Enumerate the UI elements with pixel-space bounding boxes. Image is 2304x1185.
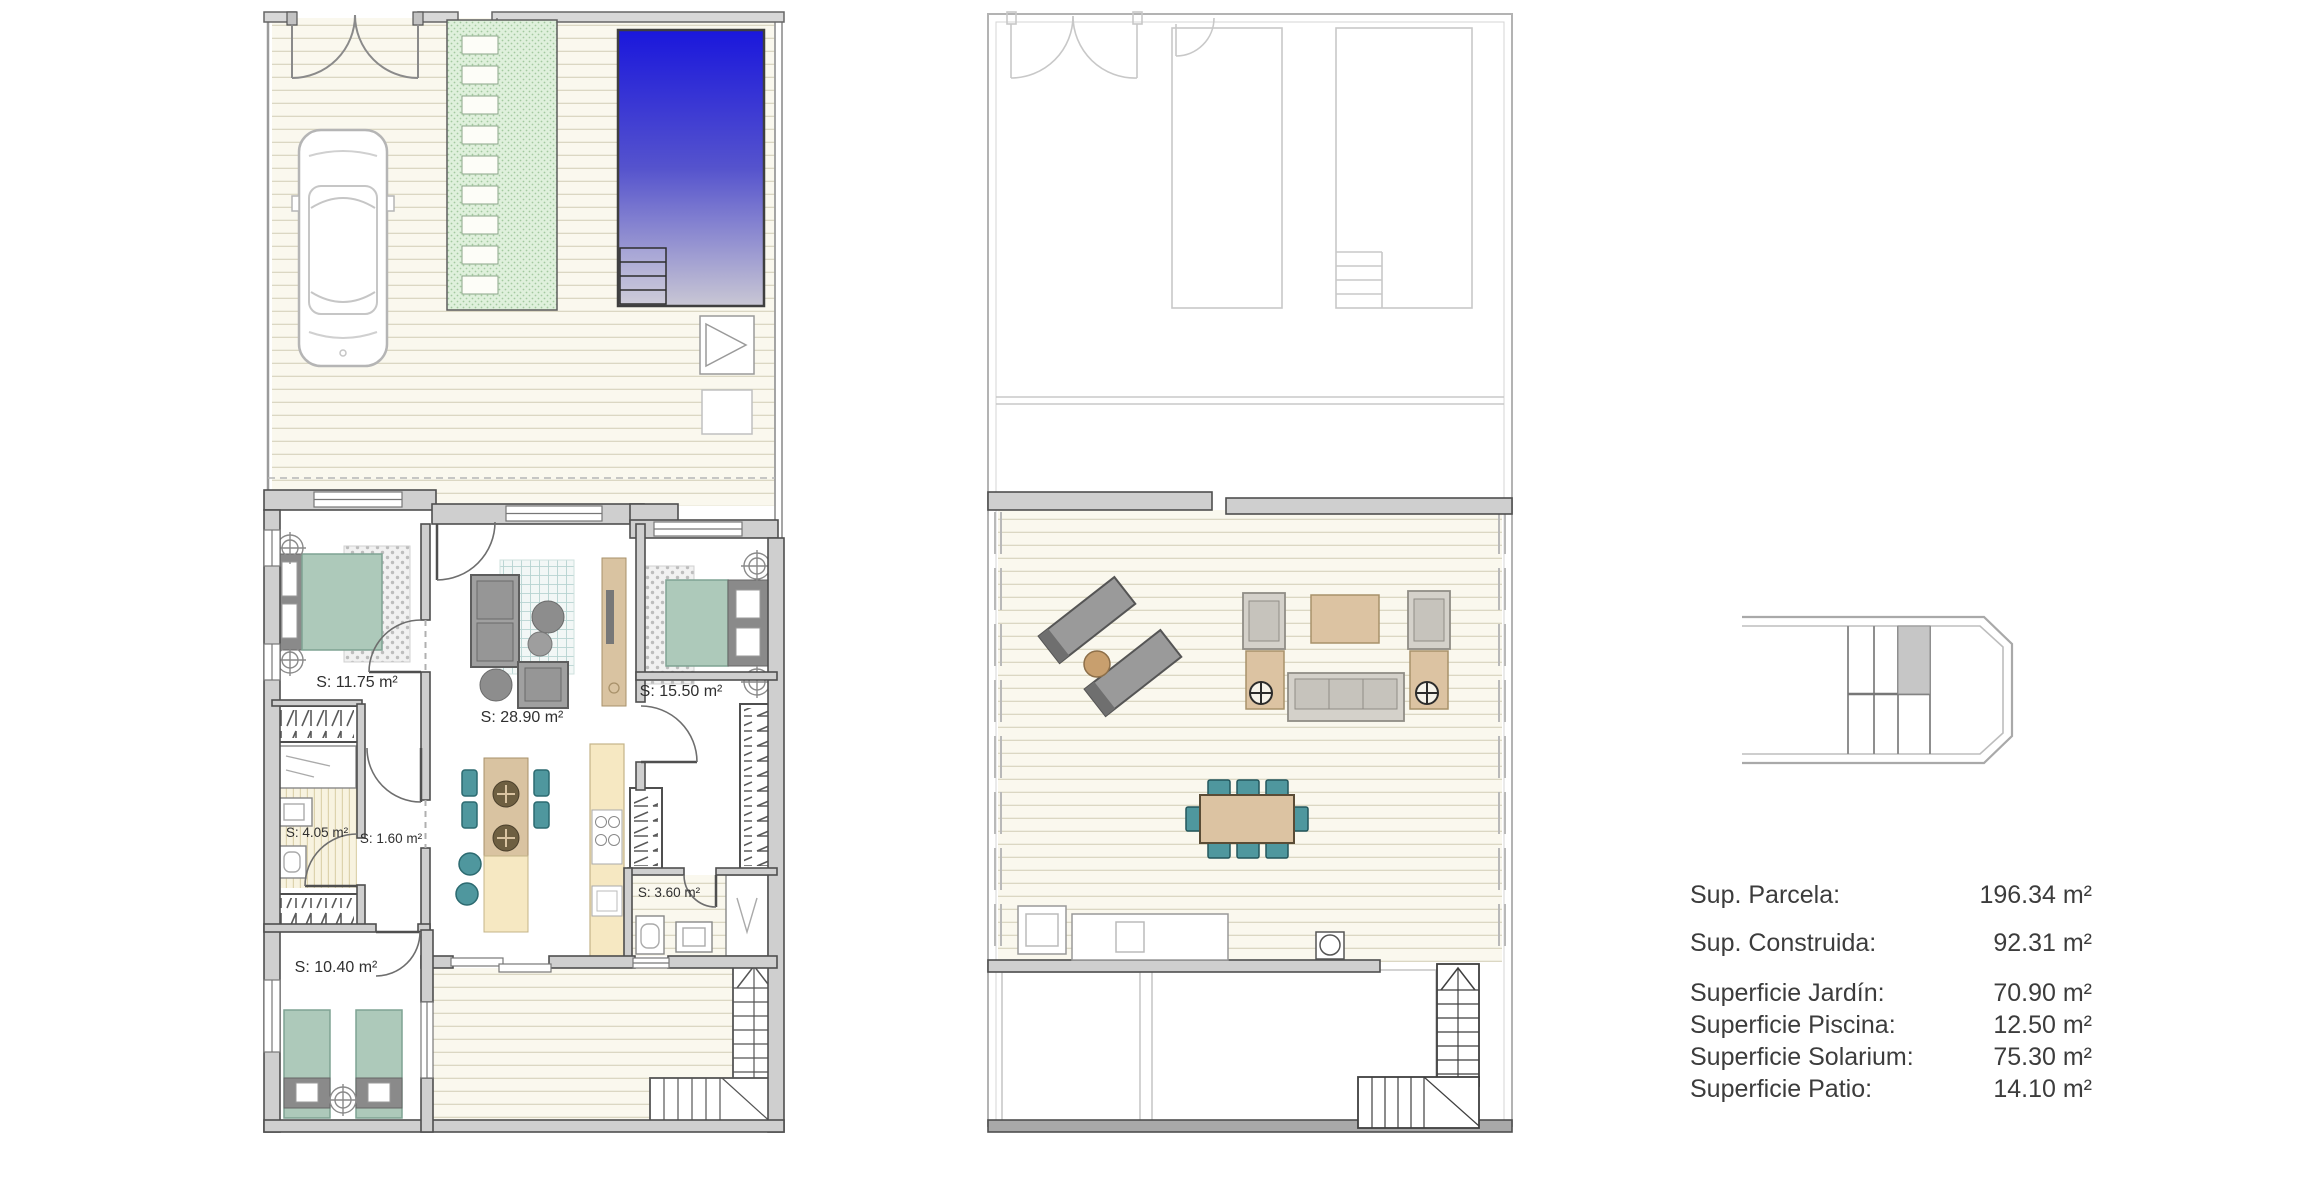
room-label-bedroom3: S: 10.40 m² bbox=[295, 959, 378, 976]
coffee-table bbox=[1311, 595, 1379, 643]
legend-row-solarium: Superficie Solarium: 75.30 m² bbox=[1690, 1042, 2092, 1072]
legend-row-jardin: Superficie Jardín: 70.90 m² bbox=[1690, 978, 2092, 1008]
area-legend: Sup. Parcela: 196.34 m² Sup. Construida:… bbox=[1690, 880, 2092, 1106]
legend-value: 70.90 m² bbox=[1993, 978, 2092, 1008]
toilet bbox=[278, 846, 306, 878]
shower bbox=[276, 746, 356, 788]
legend-value: 75.30 m² bbox=[1993, 1042, 2092, 1072]
pillow bbox=[282, 604, 297, 638]
car-icon bbox=[292, 130, 394, 366]
sliding-door bbox=[499, 964, 551, 972]
sink-icon bbox=[1116, 922, 1144, 952]
legend-value: 92.31 m² bbox=[1993, 928, 2092, 958]
pillow bbox=[296, 1083, 318, 1102]
key-plan bbox=[1742, 617, 2012, 763]
washbasin bbox=[278, 798, 312, 826]
legend-row-parcela: Sup. Parcela: 196.34 m² bbox=[1690, 880, 2092, 910]
legend-label: Superficie Solarium: bbox=[1690, 1042, 1914, 1072]
pool-steps bbox=[620, 248, 666, 304]
room-label-bathroom1: S: 4.05 m² bbox=[286, 825, 349, 840]
highlighted-unit bbox=[1898, 626, 1930, 694]
room-label-living: S: 28.90 m² bbox=[481, 709, 564, 726]
washbasin bbox=[676, 922, 712, 952]
legend-row-patio: Superficie Patio: 14.10 m² bbox=[1690, 1074, 2092, 1104]
room-label-bedroom1: S: 11.75 m² bbox=[316, 674, 398, 691]
room-label-hall: S: 1.60 m² bbox=[360, 831, 423, 846]
living-room-furniture bbox=[471, 558, 626, 708]
double-bed bbox=[666, 580, 728, 666]
pillow bbox=[736, 628, 760, 656]
legend-label: Superficie Jardín: bbox=[1690, 978, 1885, 1008]
side-table bbox=[528, 632, 552, 656]
side-table bbox=[1084, 651, 1110, 677]
legend-row-construida: Sup. Construida: 92.31 m² bbox=[1690, 928, 2092, 958]
kitchen-island-base bbox=[484, 856, 528, 932]
garden-strip bbox=[447, 20, 557, 310]
legend-label: Sup. Construida: bbox=[1690, 928, 1876, 958]
tv-icon bbox=[606, 590, 614, 644]
floorplan-sheet: S: 11.75 m² S: 28.90 m² S: 15.50 m² S: 4… bbox=[0, 0, 2304, 1185]
legend-value: 196.34 m² bbox=[1979, 880, 2092, 910]
pillow bbox=[368, 1083, 390, 1102]
legend-label: Superficie Piscina: bbox=[1690, 1010, 1896, 1040]
pillow bbox=[282, 562, 297, 596]
utility-box bbox=[702, 390, 752, 434]
side-table bbox=[532, 601, 564, 633]
solarium-deck bbox=[998, 510, 1502, 962]
pillow bbox=[736, 590, 760, 618]
swimming-pool bbox=[618, 30, 764, 306]
dining-table bbox=[1200, 795, 1294, 843]
double-bed bbox=[302, 554, 382, 650]
first-floor-plan bbox=[988, 12, 1512, 1132]
legend-row-piscina: Superficie Piscina: 12.50 m² bbox=[1690, 1010, 2092, 1040]
room-label-bedroom2: S: 15.50 m² bbox=[640, 683, 723, 700]
legend-value: 14.10 m² bbox=[1993, 1074, 2092, 1104]
pouf bbox=[480, 669, 512, 701]
room-label-bathroom2: S: 3.60 m² bbox=[638, 885, 701, 900]
pool-skimmer bbox=[700, 316, 754, 374]
legend-value: 12.50 m² bbox=[1993, 1010, 2092, 1040]
ground-floor-plan: S: 11.75 m² S: 28.90 m² S: 15.50 m² S: 4… bbox=[264, 12, 784, 1132]
legend-label: Sup. Parcela: bbox=[1690, 880, 1840, 910]
sliding-door bbox=[451, 958, 503, 966]
shower bbox=[726, 875, 768, 956]
legend-label: Superficie Patio: bbox=[1690, 1074, 1872, 1104]
